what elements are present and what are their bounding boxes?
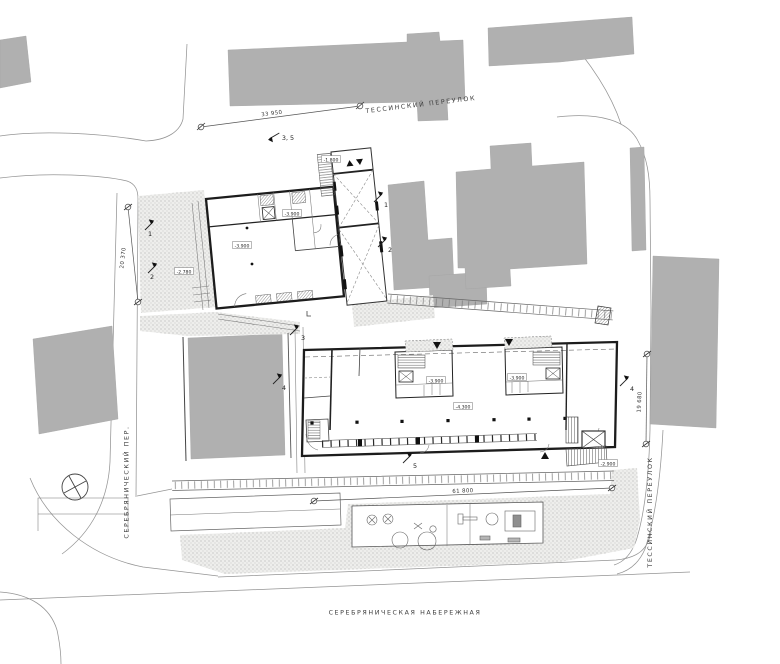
section-marker-icon bbox=[620, 375, 629, 386]
section-marker-label: 2 bbox=[150, 273, 154, 281]
existing-building bbox=[630, 147, 646, 251]
steps-hatch bbox=[595, 306, 611, 325]
existing-building bbox=[650, 256, 719, 428]
level-label: -3.900 bbox=[427, 377, 446, 385]
existing-building bbox=[488, 17, 634, 66]
existing-building bbox=[388, 181, 454, 290]
existing-building bbox=[0, 36, 31, 88]
dimension-value: 33 950 bbox=[261, 110, 283, 119]
section-marker-icon bbox=[268, 131, 280, 144]
level-label: -3.900 bbox=[508, 374, 527, 382]
embankment-tick-band bbox=[172, 471, 614, 491]
level-value: -1.800 bbox=[324, 157, 339, 163]
section-marker-label: 2 bbox=[388, 246, 392, 254]
street-label-right: ТЕССИНСКИЙ ПЕРЕУЛОК bbox=[645, 456, 654, 568]
street-label-left: СЕРЕБРЯНИЧЕСКИЙ ПЕР. bbox=[122, 425, 131, 538]
section-marker-label: 4 bbox=[630, 385, 634, 393]
site-plan-canvas: -1.800 -3.900 -3.900 -2.780 -3.900 -3.90… bbox=[0, 0, 780, 664]
level-value: -4.300 bbox=[456, 404, 471, 410]
level-value: -3.900 bbox=[285, 211, 300, 217]
dimension-top: 33 950 bbox=[197, 102, 364, 130]
level-label: -3.900 bbox=[283, 210, 302, 218]
dimension-value: 19 680 bbox=[636, 391, 643, 413]
level-value: -3.900 bbox=[235, 243, 250, 249]
section-marker-label: 4 bbox=[282, 384, 286, 392]
level-label: -2.780 bbox=[175, 268, 194, 276]
section-marker-label: 3 bbox=[301, 334, 305, 342]
level-label: -4.300 bbox=[454, 403, 473, 411]
entrance-marker-icon bbox=[541, 452, 549, 459]
embankment-structures bbox=[38, 493, 341, 531]
level-value: -3.900 bbox=[429, 378, 444, 384]
level-value: -2.900 bbox=[601, 461, 616, 467]
section-marker-label: 5 bbox=[413, 462, 417, 470]
section-marker-label: 1 bbox=[384, 201, 388, 209]
level-label: -2.900 bbox=[599, 460, 618, 468]
level-value: -2.780 bbox=[177, 269, 192, 275]
level-label: -1.800 bbox=[322, 156, 341, 164]
upper-building-plan bbox=[192, 187, 344, 310]
section-marker-label: 1 bbox=[148, 230, 152, 238]
dimension-value: 61 800 bbox=[452, 488, 474, 495]
lower-building-plan bbox=[302, 336, 617, 466]
existing-building bbox=[33, 326, 118, 434]
dimension-value: 20 370 bbox=[119, 247, 127, 269]
existing-building bbox=[456, 143, 587, 289]
north-symbol-icon bbox=[62, 474, 88, 500]
dimension-right: 19 680 bbox=[636, 351, 651, 447]
level-value: -3.900 bbox=[510, 375, 525, 381]
level-label: -3.900 bbox=[233, 242, 252, 250]
site-plan-drawing: -1.800 -3.900 -3.900 -2.780 -3.900 -3.90… bbox=[0, 0, 780, 664]
existing-building-courtyard bbox=[188, 334, 285, 459]
river-terrace bbox=[352, 502, 543, 550]
section-marker-label: 3, 5 bbox=[282, 134, 294, 142]
street-label-bottom: СЕРЕБРЯНИЧЕСКАЯ НАБЕРЕЖНАЯ bbox=[329, 610, 482, 617]
